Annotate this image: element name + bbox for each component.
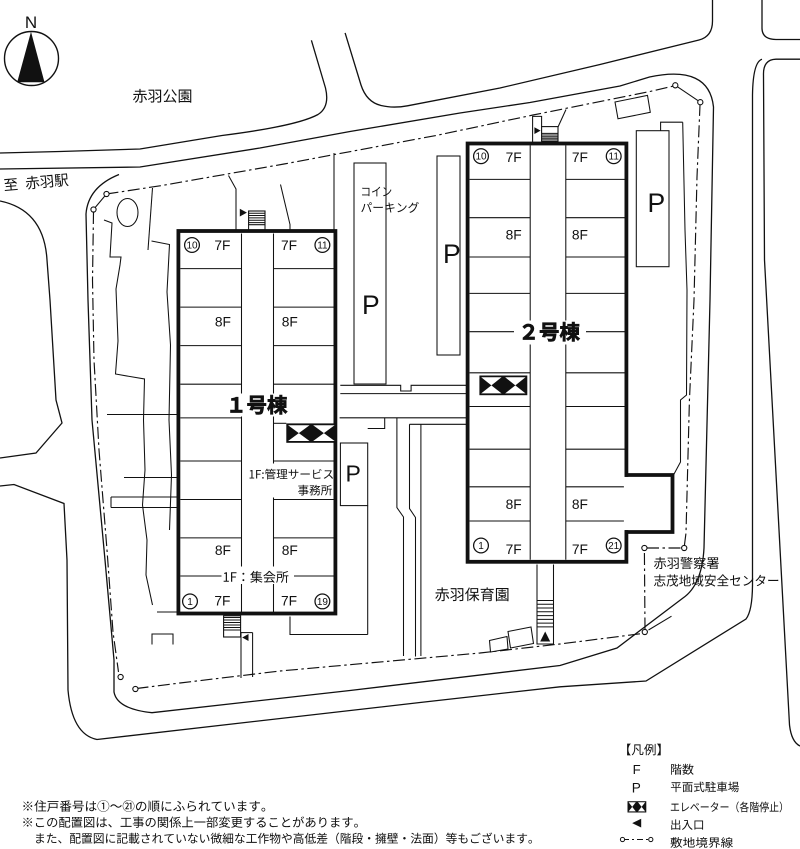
- svg-text:P: P: [632, 780, 641, 795]
- svg-text:P: P: [346, 461, 361, 487]
- svg-text:21: 21: [608, 541, 620, 552]
- svg-text:8F: 8F: [572, 496, 588, 512]
- svg-text:8F: 8F: [215, 314, 231, 330]
- svg-text:10: 10: [186, 241, 198, 252]
- svg-text:7F: 7F: [281, 237, 297, 253]
- svg-text:7F: 7F: [572, 541, 588, 557]
- svg-text:P: P: [362, 290, 380, 320]
- svg-text:8F: 8F: [282, 314, 298, 330]
- svg-text:7F: 7F: [572, 149, 588, 165]
- svg-text:8F: 8F: [572, 227, 588, 243]
- svg-text:10: 10: [475, 152, 487, 163]
- svg-text:8F: 8F: [215, 542, 231, 558]
- svg-text:8F: 8F: [506, 227, 522, 243]
- svg-text:P: P: [648, 188, 666, 218]
- svg-text:19: 19: [317, 597, 329, 608]
- svg-text:7F: 7F: [214, 593, 230, 609]
- svg-text:P: P: [443, 239, 461, 269]
- svg-text:1: 1: [478, 541, 484, 552]
- svg-text:7F: 7F: [506, 149, 522, 165]
- svg-text:1: 1: [187, 597, 193, 608]
- svg-text:8F: 8F: [282, 542, 298, 558]
- svg-text:N: N: [25, 13, 37, 32]
- svg-text:11: 11: [317, 241, 328, 252]
- svg-text:7F: 7F: [506, 541, 522, 557]
- svg-text:F: F: [633, 762, 641, 777]
- svg-text:7F: 7F: [281, 593, 297, 609]
- svg-text:11: 11: [609, 152, 620, 163]
- svg-text:7F: 7F: [214, 237, 230, 253]
- svg-text:8F: 8F: [506, 496, 522, 512]
